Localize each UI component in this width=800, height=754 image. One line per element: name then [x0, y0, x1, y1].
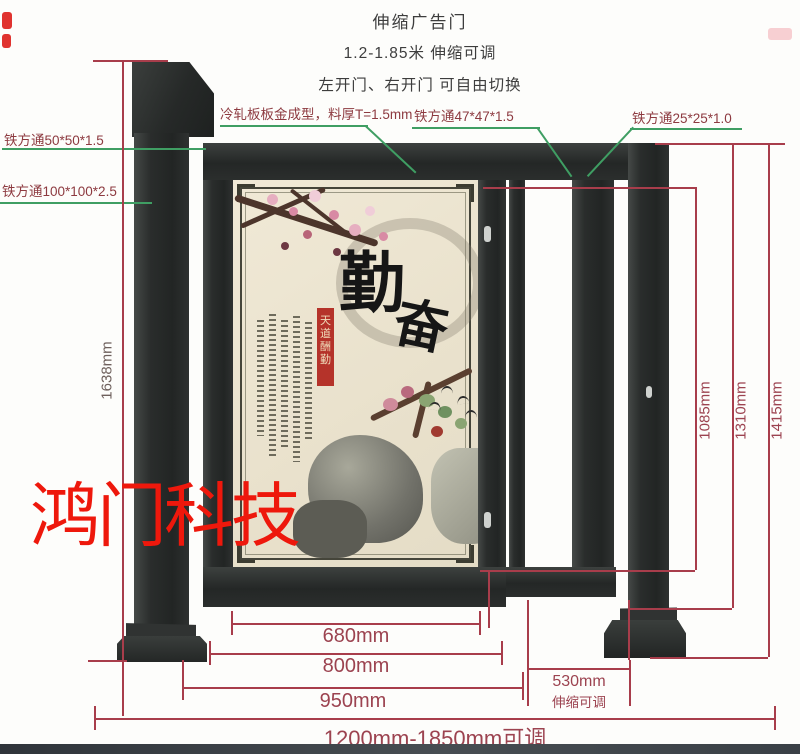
callout-tube-47: 铁方通47*47*1.5: [414, 105, 514, 125]
poem-text-column: [257, 320, 264, 436]
post-latch-knob: [646, 386, 652, 398]
ink-rock: [431, 448, 478, 544]
dim-label-800: 800mm: [210, 655, 502, 678]
ink-rock: [293, 500, 367, 558]
leader-line: [0, 202, 152, 204]
product-subtitle-switch: 左开门、右开门 可自由切换: [200, 70, 640, 102]
dim-extension: [488, 572, 490, 628]
door-lock-knob-upper: [484, 226, 491, 242]
dim-line-total-width: [95, 718, 775, 720]
red-smudge: [2, 12, 12, 29]
bonsai-foliage: [401, 386, 414, 398]
dim-label-1310: 1310mm: [733, 366, 750, 456]
calligraphy-char-qin: 勤: [339, 230, 405, 326]
plum-blossom: [289, 207, 298, 216]
plum-blossom: [303, 230, 312, 239]
plum-blossom: [281, 242, 289, 250]
dim-label-530: 530mm: [524, 673, 634, 691]
dim-label-530-note: 伸缩可调: [524, 691, 634, 711]
dim-tick: [93, 60, 168, 62]
plum-blossom: [309, 190, 321, 202]
plum-blossom: [267, 194, 278, 205]
callout-tube-50: 铁方通50*50*1.5: [4, 129, 104, 149]
bonsai-foliage: [455, 418, 467, 429]
plum-blossom: [365, 206, 375, 216]
telescopic-bar-thin: [509, 180, 525, 597]
plum-blossom: [329, 210, 339, 220]
leader-line: [412, 127, 540, 129]
dim-line-950: [183, 687, 523, 689]
leader-line: [220, 125, 368, 127]
dim-label-1085: 1085mm: [697, 366, 714, 456]
leader-line: [630, 128, 742, 130]
dim-connector: [655, 143, 785, 145]
right-post: [628, 143, 669, 625]
poster-corner-ornament: [456, 184, 474, 202]
left-post-base: [117, 636, 207, 662]
photo-bottom-edge: [0, 744, 800, 754]
dim-label-950: 950mm: [183, 690, 523, 713]
right-post-base: [604, 620, 686, 658]
callout-tube-100: 铁方通100*100*2.5: [2, 180, 117, 200]
dim-connector: [483, 187, 695, 189]
dim-extension: [628, 600, 630, 660]
dim-connector: [628, 608, 732, 610]
watermark-text: 鸿门科技: [30, 460, 298, 561]
red-smudge: [2, 34, 11, 48]
door-lock-knob-lower: [484, 512, 491, 528]
door-right-stile: [478, 180, 506, 607]
door-bottom-rail: [203, 567, 506, 607]
callout-sheet-metal: 冷轧板板金成型，料厚T=1.5mm: [220, 103, 412, 123]
dim-connector: [650, 657, 768, 659]
product-diagram: 伸缩广告门 1.2-1.85米 伸缩可调 左开门、右开门 可自由切换: [0, 0, 800, 754]
bonsai-foliage: [383, 398, 398, 411]
dim-connector: [480, 570, 695, 572]
header-text: 伸缩广告门 1.2-1.85米 伸缩可调 左开门、右开门 可自由切换: [200, 8, 640, 102]
bird-mark: [465, 410, 477, 418]
pink-smudge: [768, 28, 792, 40]
dim-label-1415: 1415mm: [769, 366, 786, 456]
poster-corner-ornament: [456, 545, 474, 563]
bonsai-foliage: [431, 426, 443, 437]
dim-label-680: 680mm: [232, 625, 480, 648]
poem-text-column: [269, 314, 276, 456]
product-subtitle-range: 1.2-1.85米 伸缩可调: [200, 38, 640, 70]
dim-tick: [88, 660, 127, 662]
product-title: 伸缩广告门: [200, 8, 640, 38]
red-seal-ribbon: 天道酬勤: [317, 308, 334, 386]
dim-line-1638: [122, 60, 124, 716]
telescopic-bar-wide: [572, 180, 614, 597]
poem-text-column: [281, 320, 288, 450]
dim-line-530: [528, 668, 630, 670]
dim-label-1638: 1638mm: [99, 326, 116, 416]
poem-text-column: [305, 322, 312, 442]
poem-text-column: [293, 316, 300, 462]
callout-tube-25: 铁方通25*25*1.0: [632, 107, 732, 127]
